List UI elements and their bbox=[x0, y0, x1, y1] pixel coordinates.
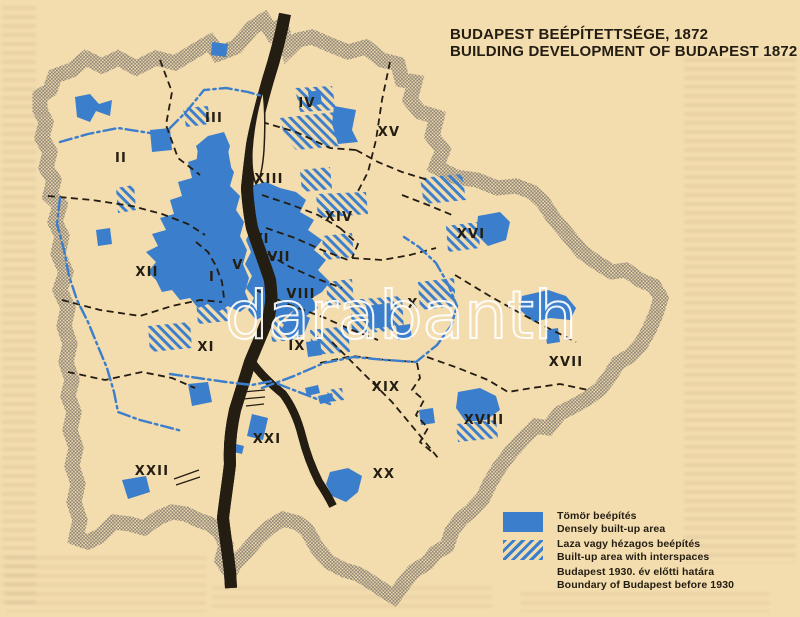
district-label-III: III bbox=[205, 111, 223, 126]
district-label-XVII: XVII bbox=[549, 355, 584, 370]
district-label-XII: XII bbox=[135, 265, 158, 280]
district-label-XIX: XIX bbox=[372, 380, 400, 395]
map-title-english: BUILDING DEVELOPMENT OF BUDAPEST 1872 bbox=[450, 43, 797, 60]
map-legend: Tömör beépítés Densely built-up area Laz… bbox=[503, 510, 795, 594]
map-title-hungarian: BUDAPEST BEÉPÍTETTSÉGE, 1872 bbox=[450, 26, 797, 43]
district-label-XVI: XVI bbox=[457, 227, 486, 242]
legend-row-loose: Laza vagy hézagos beépítés Built-up area… bbox=[503, 538, 795, 563]
district-label-XX: XX bbox=[373, 467, 395, 482]
map-title: BUDAPEST BEÉPÍTETTSÉGE, 1872 BUILDING DE… bbox=[450, 26, 797, 60]
district-label-XVIII: XVIII bbox=[464, 413, 505, 428]
legend-loose-label-en: Built-up area with interspaces bbox=[557, 551, 709, 564]
district-label-XXI: XXI bbox=[253, 432, 281, 447]
district-label-XV: XV bbox=[378, 125, 400, 140]
district-label-VII: VII bbox=[267, 250, 290, 265]
legend-row-dense: Tömör beépítés Densely built-up area bbox=[503, 510, 795, 535]
watermark: darabanth bbox=[225, 277, 577, 354]
district-label-XIV: XIV bbox=[325, 210, 354, 225]
district-label-XIII: XIII bbox=[254, 172, 283, 187]
boundary-line-swatch bbox=[503, 575, 543, 582]
legend-boundary-label-en: Boundary of Budapest before 1930 bbox=[557, 579, 734, 592]
district-label-XI: XI bbox=[197, 340, 214, 355]
scanned-book-page: IIIIIIIVVVIVIIVIIIIXXXIXIIXIIIXIVXVXVIXV… bbox=[0, 0, 800, 617]
district-label-XXII: XXII bbox=[135, 464, 170, 479]
district-label-VI: VI bbox=[252, 232, 269, 247]
legend-boundary-label-hu: Budapest 1930. év előtti határa bbox=[557, 566, 734, 579]
dense-area-swatch bbox=[503, 512, 543, 532]
legend-row-boundary: Budapest 1930. év előtti határa Boundary… bbox=[503, 566, 795, 591]
legend-loose-label-hu: Laza vagy hézagos beépítés bbox=[557, 538, 709, 551]
loose-area-swatch bbox=[503, 540, 543, 560]
legend-dense-label-en: Densely built-up area bbox=[557, 523, 665, 536]
district-label-IV: IV bbox=[298, 96, 315, 111]
district-label-I: I bbox=[209, 270, 215, 285]
legend-dense-label-hu: Tömör beépítés bbox=[557, 510, 665, 523]
district-label-II: II bbox=[115, 151, 127, 166]
harbour-lines bbox=[174, 390, 265, 485]
district-label-V: V bbox=[232, 258, 243, 273]
